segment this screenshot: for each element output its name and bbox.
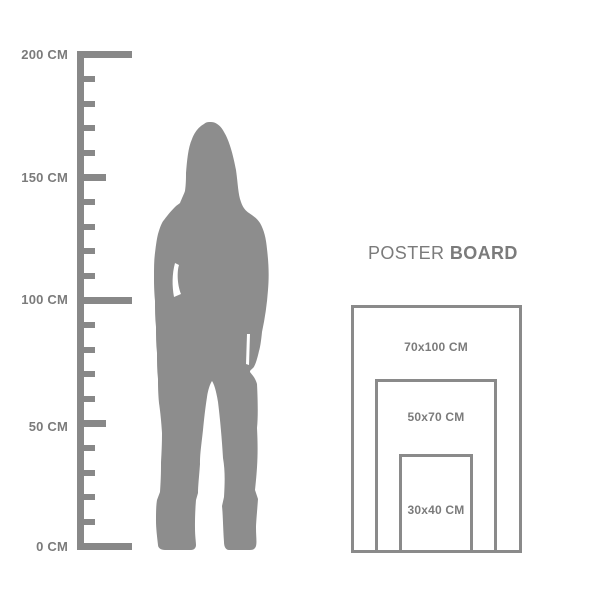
ruler-tick: [84, 199, 95, 205]
poster-board-title: POSTER BOARD: [368, 243, 518, 264]
ruler-label-150cm: 150 CM: [0, 169, 68, 186]
ruler-tick: [84, 445, 95, 451]
ruler-tick: [84, 101, 95, 107]
poster-size-label-50x70: 50x70 CM: [408, 410, 465, 424]
ruler-tick: [84, 470, 95, 476]
ruler-tick: [84, 519, 95, 525]
ruler-tick: [84, 174, 106, 181]
ruler-tick: [77, 297, 132, 304]
poster-size-label-30x40: 30x40 CM: [408, 503, 465, 517]
ruler-tick: [84, 322, 95, 328]
poster-board-title-regular: POSTER: [368, 243, 444, 263]
ruler-tick: [84, 420, 106, 427]
ruler-tick: [84, 347, 95, 353]
ruler-tick: [77, 543, 132, 550]
ruler-tick: [77, 51, 132, 58]
woman-silhouette-icon: [150, 118, 272, 552]
ruler-tick: [84, 248, 95, 254]
ruler-tick: [84, 396, 95, 402]
ruler-label-200cm: 200 CM: [0, 46, 68, 63]
ruler-tick: [84, 125, 95, 131]
woman-silhouette-body: [154, 122, 269, 550]
ruler-tick: [84, 150, 95, 156]
ruler-tick: [84, 494, 95, 500]
poster-size-label-70x100: 70x100 CM: [404, 340, 468, 354]
ruler-tick: [84, 224, 95, 230]
ruler-label-100cm: 100 CM: [0, 291, 68, 308]
ruler-tick: [84, 76, 95, 82]
size-guide-infographic: 200 CM 150 CM 100 CM 50 CM 0 CM POSTER B…: [0, 0, 600, 600]
poster-board-title-bold: BOARD: [450, 243, 518, 263]
ruler-tick: [84, 273, 95, 279]
ruler-label-50cm: 50 CM: [0, 418, 68, 435]
ruler-tick: [84, 371, 95, 377]
ruler-label-0cm: 0 CM: [0, 538, 68, 555]
